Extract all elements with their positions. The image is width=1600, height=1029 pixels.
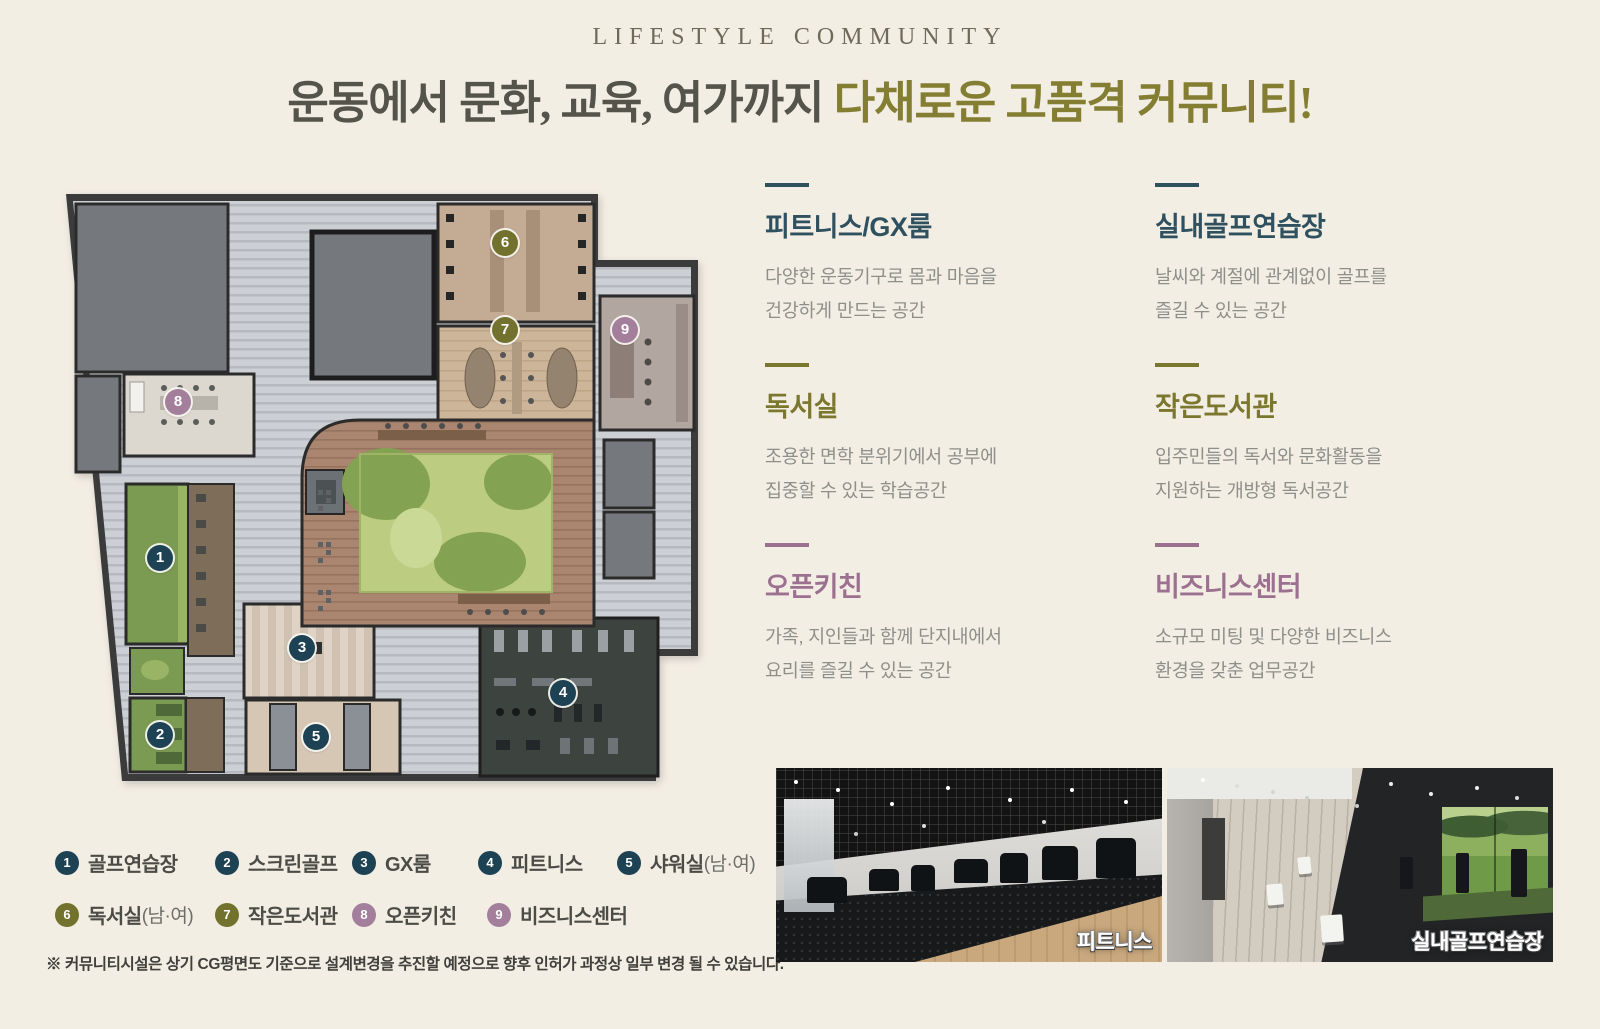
plan-legend: 1 골프연습장 2 스크린골프 3 GX룸 4 피트니스 5 샤워실(남·여) … [55, 848, 755, 952]
photo-caption-fitness: 피트니스 [1077, 926, 1152, 956]
legend-label: GX룸 [385, 848, 431, 877]
room-gray-right-a [604, 440, 654, 508]
legend-row-2: 6 독서실(남·여) 7 작은도서관 8 오픈키친 9 비즈니스센터 [55, 900, 755, 929]
feature-title: 실내골프연습장 [1155, 205, 1545, 244]
legend-label: 오픈키친 [385, 900, 457, 929]
golf-door [1202, 818, 1225, 899]
golf-zone-lights [1389, 782, 1393, 786]
feature-title: 피트니스/GX룸 [765, 205, 1155, 244]
gym-equipment [911, 865, 935, 891]
feature-description: 조용한 면학 분위기에서 공부에집중할 수 있는 학습공간 [765, 440, 1155, 508]
legend-number: 2 [215, 851, 239, 875]
gym-equipment [1000, 853, 1028, 883]
room-business [600, 296, 694, 430]
feature-business-center: 비즈니스센터 소규모 미팅 및 다양한 비즈니스환경을 갖춘 업무공간 [1155, 543, 1545, 723]
feature-open-kitchen: 오픈키친 가족, 지인들과 함께 단지내에서요리를 즐길 수 있는 공간 [765, 543, 1155, 723]
accent-bar [1155, 183, 1199, 187]
plan-marker-golf-range: 1 [147, 545, 173, 571]
legend-row-1: 1 골프연습장 2 스크린골프 3 GX룸 4 피트니스 5 샤워실(남·여) [55, 848, 755, 877]
golf-kiosk [1511, 849, 1527, 897]
legend-item-small-library: 7 작은도서관 [215, 900, 352, 929]
feature-description: 날씨와 계절에 관계없이 골프를즐길 수 있는 공간 [1155, 260, 1545, 328]
feature-description: 다양한 운동기구로 몸과 마음을건강하게 만드는 공간 [765, 260, 1155, 328]
room-screen-golf [130, 698, 224, 772]
golf-ceiling-lights [1201, 778, 1205, 782]
room-library [438, 326, 594, 430]
room-open-kitchen [124, 374, 254, 456]
plan-marker-fitness: 4 [550, 680, 576, 706]
legend-item-shower: 5 샤워실(남·여) [617, 848, 755, 877]
feature-description: 입주민들의 독서와 문화활동을지원하는 개방형 독서공간 [1155, 440, 1545, 508]
gym-equipment [807, 877, 847, 903]
room-gray-topleft [76, 204, 228, 372]
golf-kiosk [1456, 853, 1469, 893]
disclaimer-text: ※ 커뮤니티시설은 상기 CG평면도 기준으로 설계변경을 추진할 예정으로 향… [46, 952, 784, 974]
legend-item-golf-range: 1 골프연습장 [55, 848, 215, 877]
legend-number: 6 [55, 903, 79, 927]
gym-equipment [1096, 838, 1136, 878]
legend-number: 7 [215, 903, 239, 927]
accent-bar [765, 363, 809, 367]
legend-item-fitness: 4 피트니스 [478, 848, 617, 877]
feature-fitness-gx: 피트니스/GX룸 다양한 운동기구로 몸과 마음을건강하게 만드는 공간 [765, 183, 1155, 363]
room-gray-left-small [76, 376, 120, 472]
accent-bar [765, 543, 809, 547]
accent-bar [1155, 363, 1199, 367]
legend-label: 샤워실 [650, 848, 704, 877]
floor-plan-drawing [60, 190, 700, 805]
gym-equipment [1042, 846, 1078, 880]
legend-item-screen-golf: 2 스크린골프 [215, 848, 352, 877]
golf-chair [1266, 884, 1284, 906]
page-title: 운동에서 문화, 교육, 여가까지 다채로운 고품격 커뮤니티! [0, 66, 1600, 131]
room-gray-middle [312, 232, 434, 378]
golf-chair [1297, 857, 1312, 875]
feature-grid: 피트니스/GX룸 다양한 운동기구로 몸과 마음을건강하게 만드는 공간 실내골… [765, 183, 1545, 723]
golf-chair [1320, 915, 1344, 943]
plan-marker-small-library: 7 [492, 317, 518, 343]
legend-number: 4 [478, 851, 502, 875]
accent-bar [1155, 543, 1199, 547]
feature-indoor-golf: 실내골프연습장 날씨와 계절에 관계없이 골프를즐길 수 있는 공간 [1155, 183, 1545, 363]
page-title-plain: 운동에서 문화, 교육, 여가까지 [287, 78, 833, 128]
legend-label: 스크린골프 [248, 848, 338, 877]
golf-ceiling [1167, 768, 1352, 799]
legend-number: 9 [487, 903, 511, 927]
gym-equipment [954, 859, 988, 883]
legend-label: 피트니스 [511, 848, 583, 877]
legend-item-business-center: 9 비즈니스센터 [487, 900, 627, 929]
floor-plan: 1 2 3 4 5 6 7 8 9 [60, 190, 700, 805]
accent-bar [765, 183, 809, 187]
plan-marker-gx-room: 3 [289, 635, 315, 661]
feature-description: 소규모 미팅 및 다양한 비즈니스환경을 갖춘 업무공간 [1155, 620, 1545, 688]
fitness-ceiling-lights [794, 780, 798, 784]
feature-title: 비즈니스센터 [1155, 565, 1545, 604]
legend-number: 8 [352, 903, 376, 927]
feature-title: 오픈키친 [765, 565, 1155, 604]
eyebrow-title: LIFESTYLE COMMUNITY [0, 24, 1600, 51]
plan-marker-open-kitchen: 8 [165, 389, 191, 415]
legend-item-open-kitchen: 8 오픈키친 [352, 900, 487, 929]
golf-kiosk [1400, 857, 1413, 889]
photo-caption-golf: 실내골프연습장 [1411, 926, 1543, 956]
gym-equipment [869, 869, 899, 891]
legend-label: 독서실 [88, 900, 142, 929]
feature-description: 가족, 지인들과 함께 단지내에서요리를 즐길 수 있는 공간 [765, 620, 1155, 688]
plan-marker-business-center: 9 [612, 317, 638, 343]
legend-number: 3 [352, 851, 376, 875]
legend-item-reading-room: 6 독서실(남·여) [55, 900, 215, 929]
legend-label: 작은도서관 [248, 900, 338, 929]
plan-marker-reading-room: 6 [492, 230, 518, 256]
legend-number: 5 [617, 851, 641, 875]
plan-marker-shower: 5 [303, 724, 329, 750]
legend-item-gx-room: 3 GX룸 [352, 848, 478, 877]
page-title-accent: 다채로운 고품격 커뮤니티! [834, 78, 1313, 128]
legend-label: 골프연습장 [88, 848, 178, 877]
room-gray-right-b [604, 512, 654, 578]
photo-indoor-golf: 실내골프연습장 [1167, 768, 1553, 962]
legend-number: 1 [55, 851, 79, 875]
feature-title: 독서실 [765, 385, 1155, 424]
photo-fitness: 피트니스 [776, 768, 1162, 962]
courtyard [302, 420, 594, 626]
plan-marker-screen-golf: 2 [147, 722, 173, 748]
room-reading [438, 204, 594, 322]
legend-label: 비즈니스센터 [520, 900, 627, 929]
feature-reading-room: 독서실 조용한 면학 분위기에서 공부에집중할 수 있는 학습공간 [765, 363, 1155, 543]
feature-title: 작은도서관 [1155, 385, 1545, 424]
feature-small-library: 작은도서관 입주민들의 독서와 문화활동을지원하는 개방형 독서공간 [1155, 363, 1545, 543]
community-brochure-page: { "header": { "eyebrow": "LIFESTYLE COMM… [0, 0, 1600, 1029]
